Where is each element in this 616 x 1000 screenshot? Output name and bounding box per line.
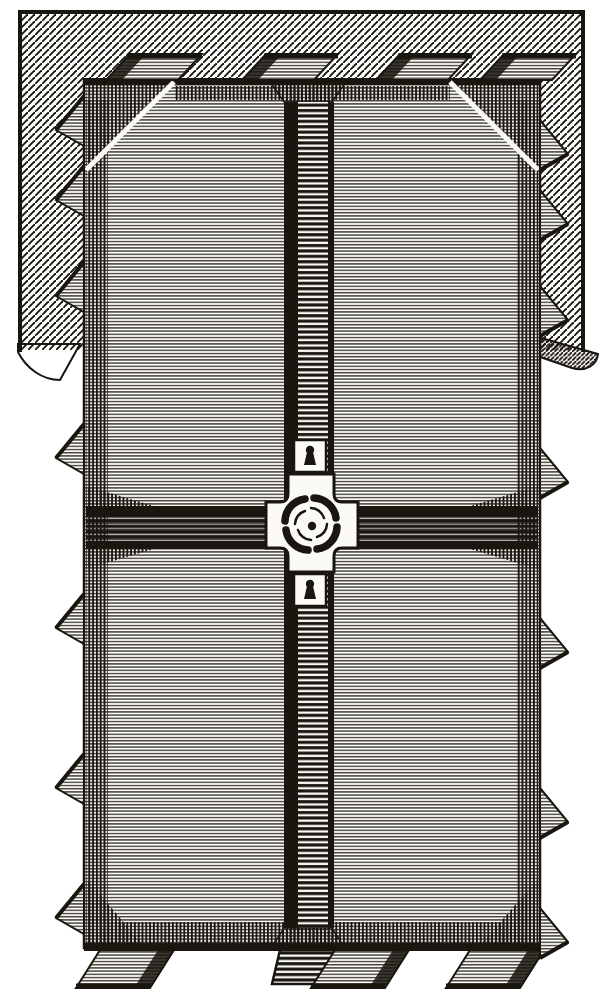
- vchannel-bottom-flare: [270, 928, 346, 950]
- plate: [84, 78, 540, 984]
- vchannel-top-flare: [270, 82, 346, 102]
- engraving-figure: [0, 0, 616, 1000]
- pinwheel-hub: [308, 522, 316, 530]
- engraving-page: [0, 0, 616, 1000]
